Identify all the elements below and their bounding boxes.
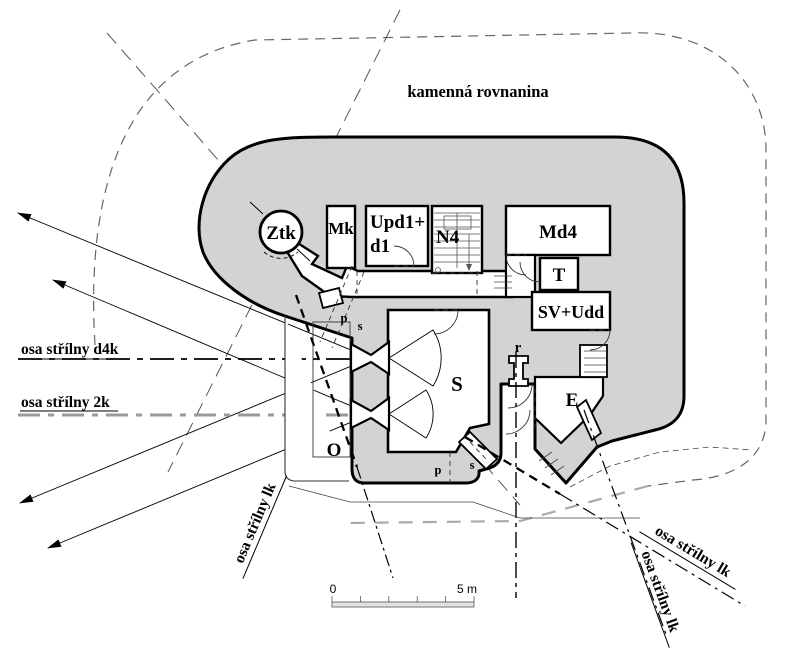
scale-bar: 0 5 m <box>330 582 477 607</box>
label-o: O <box>327 440 342 461</box>
label-upd1: Upd1+ <box>370 212 425 233</box>
label-n4: N4 <box>436 227 460 248</box>
label-s: S <box>451 372 463 396</box>
door-hall-lower <box>506 410 530 434</box>
mark-p-upper: p <box>341 311 348 325</box>
label-md4: Md4 <box>539 222 578 243</box>
axis-label-lk-sw: osa střílny lk <box>231 480 280 565</box>
boundary-bottom-gray-dash <box>348 486 648 523</box>
label-r: r <box>515 340 522 356</box>
fortification-plan: kamenná rovnanina Ztk Mk Upd1+ d1 N4 Md4… <box>0 0 800 651</box>
label-mk: Mk <box>328 219 354 238</box>
axis-label-lk-sw-group: osa střílny lk <box>225 468 286 579</box>
label-d1: d1 <box>370 236 390 257</box>
mark-p-lower: p <box>435 463 442 477</box>
scale-zero: 0 <box>330 582 337 596</box>
axis-label-2k: osa střílny 2k <box>21 394 110 411</box>
mark-s-upper: s <box>358 319 363 333</box>
label-ztk: Ztk <box>266 223 296 244</box>
label-t: T <box>553 265 566 286</box>
door-hall-upper <box>508 384 532 408</box>
scale-five-m: 5 m <box>457 582 477 596</box>
label-e: E <box>566 390 579 411</box>
plan-svg: kamenná rovnanina Ztk Mk Upd1+ d1 N4 Md4… <box>0 0 800 651</box>
axis-label-lk-se-upper: osa střílny lk <box>652 522 734 581</box>
axis-label-d4k: osa střílny d4k <box>21 341 119 358</box>
mark-s-lower: s <box>470 458 475 472</box>
label-sv-udd: SV+Udd <box>538 302 604 322</box>
lk-axis-e-room <box>584 410 667 637</box>
stone-packing-label: kamenná rovnanina <box>407 82 548 101</box>
